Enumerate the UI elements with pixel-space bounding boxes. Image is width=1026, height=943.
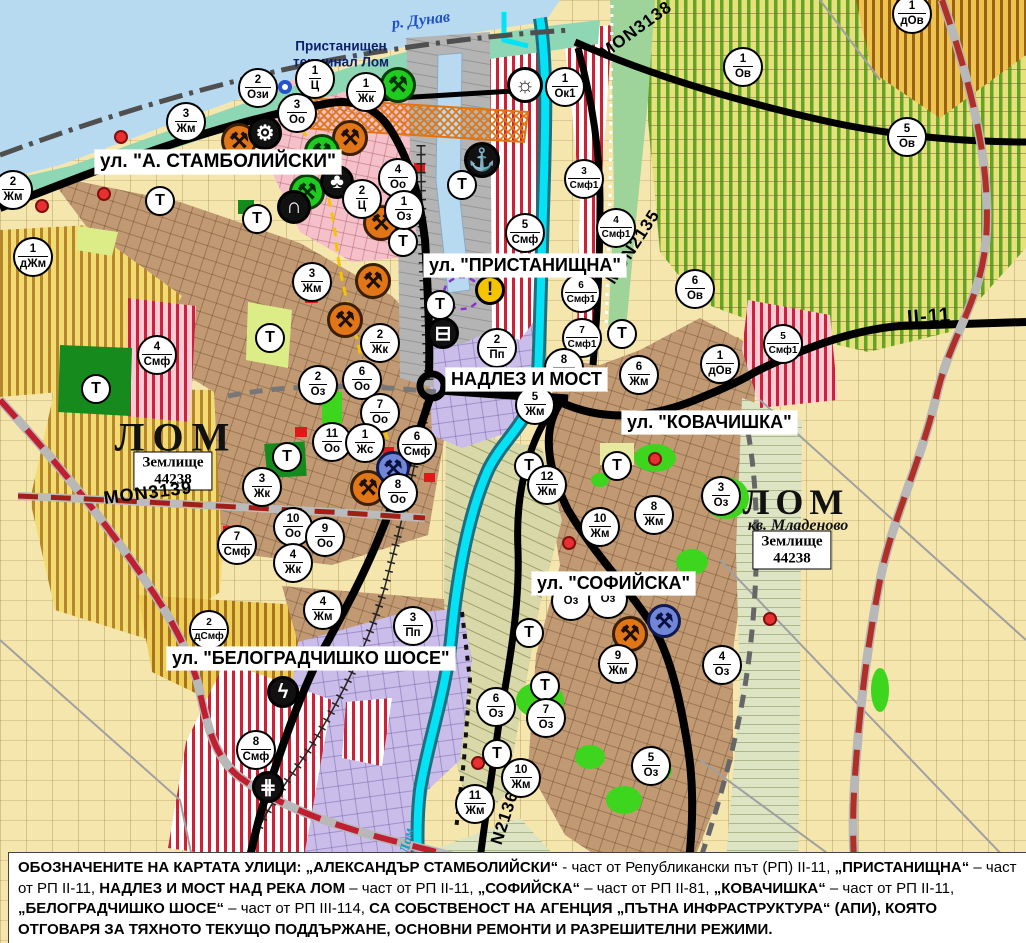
- footnote-segment: „СОФИЙСКА“: [478, 880, 580, 897]
- zone-marker: 2Ц: [342, 179, 382, 219]
- zone-marker: 10Жм: [580, 507, 620, 547]
- zone-marker-code: дОв: [706, 363, 733, 378]
- zone-marker-code: Оз: [487, 706, 506, 721]
- zone-marker-code: Оо: [352, 379, 372, 394]
- zone-marker-code: Пп: [487, 347, 506, 362]
- zone-marker: 8Оо: [378, 473, 418, 513]
- zone-marker-code: Смф1: [565, 292, 598, 305]
- zone-marker-code: Смф: [510, 232, 541, 247]
- heritage-blue-icon: ⚒: [647, 604, 681, 638]
- zone-marker-code: дОв: [898, 13, 925, 28]
- zone-marker-number: 4: [717, 652, 727, 665]
- truck-icon: ⊟: [427, 317, 459, 349]
- footnote-segment: НАДЛЕЗ И МОСТ НАД РЕКА ЛОМ: [99, 880, 345, 897]
- zone-marker: 1Жк: [346, 72, 386, 112]
- footnote-segment: – част от РП II-11,: [826, 880, 954, 897]
- street-label: ул. "А. СТАМБОЛИЙСКИ": [95, 150, 341, 174]
- key-icon: ⚙: [248, 116, 282, 150]
- zone-marker-code: Оз: [537, 717, 556, 732]
- street-label: ул. "БЕЛОГРАДЧИШКО ШОСЕ": [167, 647, 455, 670]
- zone-marker-number: 2: [375, 330, 385, 343]
- street-label: ул. "СОФИЙСКА": [532, 572, 695, 595]
- zone-marker-number: 10: [592, 514, 609, 527]
- zone-marker-code: Жм: [464, 803, 487, 818]
- zone-marker-code: Оз: [713, 664, 732, 679]
- zone-marker-code: Оз: [642, 765, 661, 780]
- transport-marker: Т: [242, 204, 272, 234]
- road-number-label: II-11: [906, 304, 951, 330]
- zone-marker-code: Жм: [536, 484, 559, 499]
- zone-marker-number: 8: [559, 355, 569, 368]
- zone-marker-number: 1: [715, 351, 725, 364]
- zone-marker-number: 1: [361, 79, 371, 92]
- arch-icon: ∩: [277, 190, 311, 224]
- zone-marker: 6Смф1: [561, 273, 601, 313]
- zone-marker-number: 8: [649, 502, 659, 515]
- zone-marker-number: 11: [324, 429, 340, 442]
- footnote-segment: „ПРИСТАНИЩНА“: [835, 859, 970, 876]
- zone-marker-code: Смф: [241, 749, 272, 764]
- zone-marker-number: 6: [690, 276, 700, 289]
- zone-marker-number: 2: [8, 177, 18, 190]
- transport-marker: Т: [602, 451, 632, 481]
- zone-marker-code: Оз: [712, 495, 731, 510]
- zone-marker-number: 3: [292, 100, 302, 113]
- zone-marker: 3Жм: [292, 262, 332, 302]
- zone-marker: 9Оо: [305, 517, 345, 557]
- zone-marker: 4Жк: [273, 543, 313, 583]
- zone-marker-code: Жм: [589, 526, 612, 541]
- zone-marker: 6Ов: [675, 269, 715, 309]
- zone-marker: 6Оз: [476, 687, 516, 727]
- zone-marker-code: Жм: [643, 514, 666, 529]
- zone-marker-code: Ц: [309, 78, 321, 93]
- zone-marker-code: Смф1: [767, 343, 800, 356]
- zone-marker-number: 2: [492, 335, 502, 348]
- zone-marker-number: 7: [577, 326, 587, 337]
- zone-marker-code: дСмф: [192, 629, 226, 642]
- zone-marker: 3Пп: [393, 606, 433, 646]
- footnote-segment: „КОВАЧИШКА“: [714, 880, 826, 897]
- zone-marker: 3Жм: [166, 102, 206, 142]
- zone-marker-number: 1: [310, 66, 320, 79]
- zone-marker: 1Оз: [384, 190, 424, 230]
- zone-marker-number: 4: [318, 597, 328, 610]
- rail-icon: ⋕: [252, 771, 284, 803]
- zone-marker-number: 5: [902, 124, 912, 137]
- zone-marker-number: 2: [253, 75, 263, 88]
- zone-marker-code: Ов: [897, 136, 917, 151]
- footnote-segment: – част от РП III-114,: [224, 900, 369, 917]
- zone-marker-code: Жм: [628, 374, 651, 389]
- zone-marker: 2дСмф: [189, 610, 229, 650]
- street-label: НАДЛЕЗ И МОСТ: [446, 368, 607, 391]
- zone-marker-code: Ов: [733, 66, 753, 81]
- zone-marker: 5Оз: [631, 746, 671, 786]
- zone-marker-number: 6: [357, 367, 367, 380]
- zone-marker-number: 9: [320, 524, 330, 537]
- zone-marker: 4Смф1: [596, 208, 636, 248]
- zone-marker-code: Жм: [510, 777, 533, 792]
- zone-marker-number: 1: [560, 74, 570, 87]
- zone-marker-code: Ози: [245, 87, 271, 102]
- zone-marker-code: Жк: [356, 91, 376, 106]
- zone-marker: 7Оз: [526, 698, 566, 738]
- zone-marker: 5Смф1: [763, 324, 803, 364]
- zone-marker-code: Жк: [370, 342, 390, 357]
- zone-marker-number: 1: [738, 54, 748, 67]
- zone-marker: 1Ок1: [545, 67, 585, 107]
- zone-marker-number: 6: [576, 281, 586, 292]
- zone-marker-number: 2: [357, 186, 367, 199]
- zone-marker: 11Жм: [455, 784, 495, 824]
- zone-marker-code: Смф: [222, 544, 253, 559]
- zone-marker-code: Оз: [309, 384, 328, 399]
- zone-marker: 7Смф: [217, 525, 257, 565]
- zone-marker-code: Оз: [395, 209, 414, 224]
- zone-marker-number: 8: [251, 737, 261, 750]
- zone-marker-number: 1: [399, 197, 409, 210]
- zone-marker-number: 5: [646, 753, 656, 766]
- zone-marker-code: Жм: [524, 404, 547, 419]
- ring-icon: [278, 80, 292, 94]
- zone-marker-number: 5: [778, 332, 788, 343]
- zone-marker-code: Оо: [322, 441, 342, 456]
- street-label: ул. "ПРИСТАНИЩНА": [424, 254, 626, 277]
- zone-marker: 2Ози: [238, 68, 278, 108]
- zone-marker-code: Смф1: [600, 227, 633, 240]
- zone-marker-code: Смф1: [566, 337, 599, 350]
- zone-marker-number: 4: [288, 550, 298, 563]
- zone-marker-code: Ок1: [552, 86, 577, 101]
- zone-marker-code: Оо: [287, 112, 307, 127]
- zone-marker-code: Оо: [388, 492, 408, 507]
- zone-marker-code: Жм: [301, 281, 324, 296]
- transport-marker: Т: [425, 290, 455, 320]
- zone-marker-code: Оз: [562, 594, 581, 608]
- heritage-orange-icon: ⚒: [355, 263, 391, 299]
- sun-icon: ☼: [507, 67, 543, 103]
- zone-marker-code: Смф1: [568, 178, 601, 191]
- zoning-map: Пристанищен терминал Лом р. Дунав Лом ЛО…: [0, 0, 1026, 943]
- zone-marker: 1дЖм: [13, 237, 53, 277]
- zone-marker-code: Жс: [355, 442, 376, 457]
- zone-marker-number: 12: [539, 472, 556, 485]
- footnote-segment: „БЕЛОГРАДЧИШКО ШОСЕ“: [18, 900, 224, 917]
- zone-marker: 1дОв: [700, 344, 740, 384]
- transport-marker: Т: [447, 170, 477, 200]
- zone-marker-code: Жк: [252, 486, 272, 501]
- zone-marker-number: 11: [467, 791, 483, 804]
- zone-marker: 5Жм: [515, 385, 555, 425]
- zone-marker-code: Жм: [2, 189, 25, 204]
- zone-marker-code: Пп: [403, 625, 422, 640]
- zone-marker-number: 6: [491, 694, 501, 707]
- zone-marker: 3Жк: [242, 467, 282, 507]
- zone-marker-number: 4: [393, 165, 403, 178]
- map-footnote: ОБОЗНАЧЕНИТЕ НА КАРТАТА УЛИЦИ: „АЛЕКСАНД…: [8, 852, 1026, 943]
- zone-marker-number: 4: [611, 216, 621, 227]
- zone-marker-number: 3: [257, 474, 267, 487]
- heritage-orange-icon: ⚒: [327, 302, 363, 338]
- street-label: ул. "КОВАЧИШКА": [622, 411, 797, 434]
- zone-marker-code: Ц: [356, 198, 368, 213]
- zone-marker: 3Оо: [277, 93, 317, 133]
- transport-marker: Т: [145, 186, 175, 216]
- heritage-green-icon: ⚒: [380, 67, 416, 103]
- zone-marker-number: 3: [579, 167, 589, 178]
- footnote-segment: ОБОЗНАЧЕНИТЕ НА КАРТАТА УЛИЦИ: „АЛЕКСАНД…: [18, 859, 558, 876]
- transport-marker: Т: [255, 323, 285, 353]
- zone-marker: 12Жм: [527, 465, 567, 505]
- transport-marker: Т: [530, 671, 560, 701]
- zone-marker-number: 4: [152, 342, 162, 355]
- transport-marker: Т: [388, 227, 418, 257]
- zone-marker-number: 7: [375, 400, 385, 413]
- zone-marker: 5Смф: [505, 213, 545, 253]
- zone-marker-number: 10: [285, 514, 302, 527]
- zone-marker-code: Оо: [283, 526, 303, 541]
- zone-marker-code: Жк: [283, 562, 303, 577]
- zone-marker-number: 9: [613, 651, 623, 664]
- zone-marker: 2Оз: [298, 365, 338, 405]
- zone-marker-number: 5: [530, 392, 540, 405]
- zone-marker-number: 7: [541, 705, 551, 718]
- zone-marker: 2Пп: [477, 328, 517, 368]
- zone-marker-number: 3: [181, 109, 191, 122]
- footnote-segment: – част от РП II-81,: [580, 880, 714, 897]
- zone-marker-number: 1: [28, 244, 38, 257]
- zone-marker: 1Ов: [723, 47, 763, 87]
- zone-marker: 3Оз: [701, 476, 741, 516]
- zone-marker-number: 6: [412, 432, 422, 445]
- zone-marker: 4Жм: [303, 590, 343, 630]
- zone-marker-code: Смф: [402, 444, 433, 459]
- zone-marker-code: дЖм: [18, 256, 48, 271]
- zone-marker: 6Смф: [397, 425, 437, 465]
- zone-marker: 2Жк: [360, 323, 400, 363]
- zone-marker-number: 1: [907, 1, 917, 14]
- warning-icon: !: [475, 275, 505, 305]
- zone-marker-code: Жм: [175, 121, 198, 136]
- zone-marker-code: Смф: [142, 354, 173, 369]
- zone-marker-number: 10: [513, 765, 530, 778]
- zone-marker: 6Жм: [619, 355, 659, 395]
- land-parcel-box-right: Землище44238: [752, 531, 831, 570]
- zone-marker-number: 3: [307, 269, 317, 282]
- transport-marker: Т: [607, 319, 637, 349]
- zone-marker-number: 5: [520, 220, 530, 233]
- lightning-icon: ϟ: [267, 676, 299, 708]
- zone-marker-code: Оо: [315, 536, 335, 551]
- zone-marker-number: 6: [634, 362, 644, 375]
- zone-marker-number: 2: [204, 618, 214, 629]
- zone-marker-number: 3: [716, 483, 726, 496]
- zone-marker: 4Оз: [702, 645, 742, 685]
- zone-marker-code: Жм: [607, 663, 630, 678]
- footnote-segment: - част от Републикански път (РП) II-11,: [558, 859, 834, 876]
- zone-marker-number: 2: [313, 372, 323, 385]
- footnote-segment: – част от РП II-11,: [345, 880, 478, 897]
- zone-marker-code: Жм: [312, 609, 335, 624]
- zone-marker: 8Смф: [236, 730, 276, 770]
- transport-marker: Т: [514, 618, 544, 648]
- zone-marker-number: 8: [393, 480, 403, 493]
- transport-marker: Т: [272, 442, 302, 472]
- zone-marker-number: 1: [360, 430, 370, 443]
- zone-marker: 5Ов: [887, 117, 927, 157]
- zone-marker: 1Жс: [345, 423, 385, 463]
- zone-marker: 3Смф1: [564, 159, 604, 199]
- zone-marker-number: 7: [232, 532, 242, 545]
- zone-marker: 4Смф: [137, 335, 177, 375]
- zone-marker: 10Жм: [501, 758, 541, 798]
- zone-marker: 8Жм: [634, 495, 674, 535]
- zone-marker-code: Ов: [685, 288, 705, 303]
- zone-marker-number: 3: [408, 613, 418, 626]
- zone-marker: 9Жм: [598, 644, 638, 684]
- transport-marker: Т: [81, 374, 111, 404]
